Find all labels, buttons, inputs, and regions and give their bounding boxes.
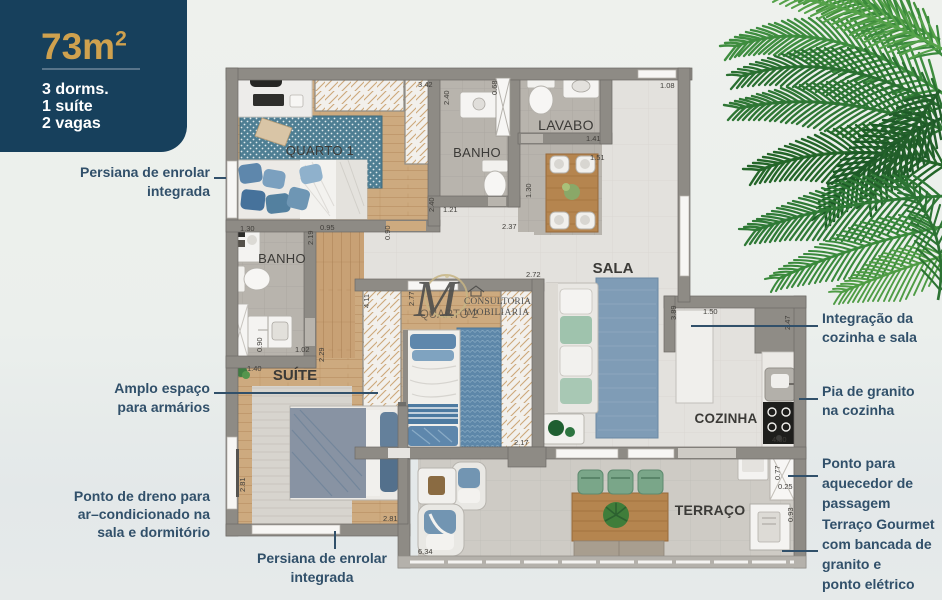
svg-text:0.93: 0.93 bbox=[786, 507, 795, 522]
svg-text:0.77: 0.77 bbox=[773, 465, 782, 480]
svg-text:SALA: SALA bbox=[593, 260, 634, 277]
svg-text:0.95: 0.95 bbox=[320, 223, 335, 232]
svg-text:2.17: 2.17 bbox=[514, 438, 529, 447]
svg-text:2.40: 2.40 bbox=[442, 90, 451, 105]
svg-text:2.47: 2.47 bbox=[783, 315, 792, 330]
svg-text:0.68: 0.68 bbox=[490, 80, 499, 95]
svg-text:2.81: 2.81 bbox=[383, 514, 398, 523]
svg-text:COZINHA: COZINHA bbox=[695, 411, 758, 426]
svg-text:1.41: 1.41 bbox=[586, 134, 601, 143]
svg-text:6.34: 6.34 bbox=[418, 547, 433, 556]
svg-text:1.21: 1.21 bbox=[443, 205, 458, 214]
svg-text:2.72: 2.72 bbox=[526, 270, 541, 279]
svg-text:2.40: 2.40 bbox=[427, 197, 436, 212]
svg-text:2.81: 2.81 bbox=[238, 477, 247, 492]
svg-text:3.89: 3.89 bbox=[669, 305, 678, 320]
svg-text:0.90: 0.90 bbox=[383, 225, 392, 240]
svg-text:2.37: 2.37 bbox=[502, 222, 517, 231]
svg-text:2.19: 2.19 bbox=[306, 230, 315, 245]
svg-text:1.50: 1.50 bbox=[703, 307, 718, 316]
svg-text:1.30: 1.30 bbox=[240, 224, 255, 233]
svg-text:BANHO: BANHO bbox=[258, 251, 306, 266]
svg-text:BANHO: BANHO bbox=[453, 145, 501, 160]
svg-text:1.51: 1.51 bbox=[590, 153, 605, 162]
svg-text:QUARTO 1: QUARTO 1 bbox=[286, 143, 354, 158]
svg-text:CONSULTORIA: CONSULTORIA bbox=[464, 297, 531, 307]
svg-text:LAVABO: LAVABO bbox=[538, 117, 594, 133]
svg-text:1.30: 1.30 bbox=[524, 183, 533, 198]
svg-text:2.29: 2.29 bbox=[317, 347, 326, 362]
svg-text:3.42: 3.42 bbox=[418, 80, 433, 89]
svg-text:1.08: 1.08 bbox=[660, 81, 675, 90]
svg-text:0.90: 0.90 bbox=[255, 337, 264, 352]
svg-text:1.40: 1.40 bbox=[247, 364, 262, 373]
svg-text:4.11: 4.11 bbox=[362, 294, 371, 308]
svg-text:SUÍTE: SUÍTE bbox=[273, 367, 317, 384]
svg-text:TERRAÇO: TERRAÇO bbox=[675, 502, 746, 518]
svg-text:IMOBILIARIA: IMOBILIARIA bbox=[464, 308, 530, 318]
svg-text:M: M bbox=[413, 271, 460, 328]
svg-text:0.25: 0.25 bbox=[778, 482, 793, 491]
svg-text:4.30: 4.30 bbox=[772, 435, 787, 444]
svg-text:1.02: 1.02 bbox=[295, 345, 310, 354]
